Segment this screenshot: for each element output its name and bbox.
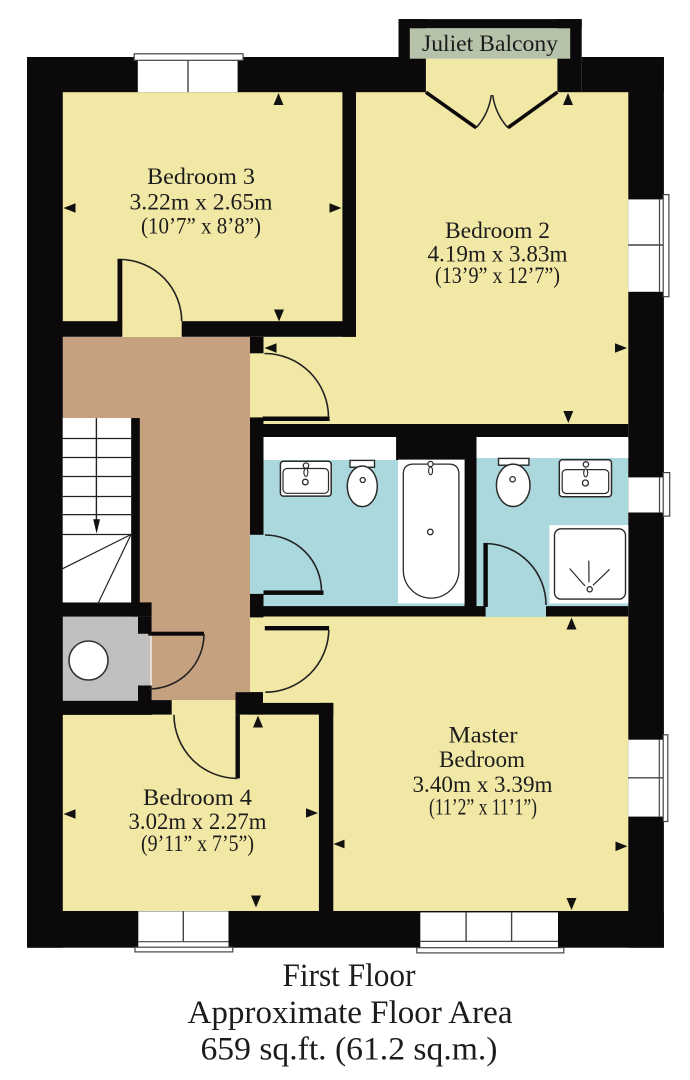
svg-text:Bedroom 4: Bedroom 4 — [143, 785, 252, 811]
svg-text:Bedroom 2: Bedroom 2 — [445, 218, 550, 244]
svg-text:659 sq.ft. (61.2 sq.m.): 659 sq.ft. (61.2 sq.m.) — [201, 1032, 498, 1068]
svg-text:Master: Master — [449, 723, 518, 749]
svg-text:Approximate Floor Area: Approximate Floor Area — [188, 995, 513, 1031]
svg-text:Bedroom: Bedroom — [439, 747, 525, 773]
svg-text:(11’2” x 11’1”): (11’2” x 11’1”) — [429, 795, 537, 821]
svg-text:Bedroom 3: Bedroom 3 — [147, 164, 255, 190]
svg-text:(13’9” x 12’7”): (13’9” x 12’7”) — [435, 263, 560, 289]
svg-text:(9’11” x 7’5”): (9’11” x 7’5”) — [141, 831, 254, 857]
svg-text:(10’7” x 8’8”): (10’7” x 8’8”) — [141, 214, 261, 240]
svg-text:First Floor: First Floor — [283, 958, 416, 994]
svg-text:3.22m x 2.65m: 3.22m x 2.65m — [130, 190, 273, 216]
svg-text:Juliet Balcony: Juliet Balcony — [422, 31, 559, 56]
